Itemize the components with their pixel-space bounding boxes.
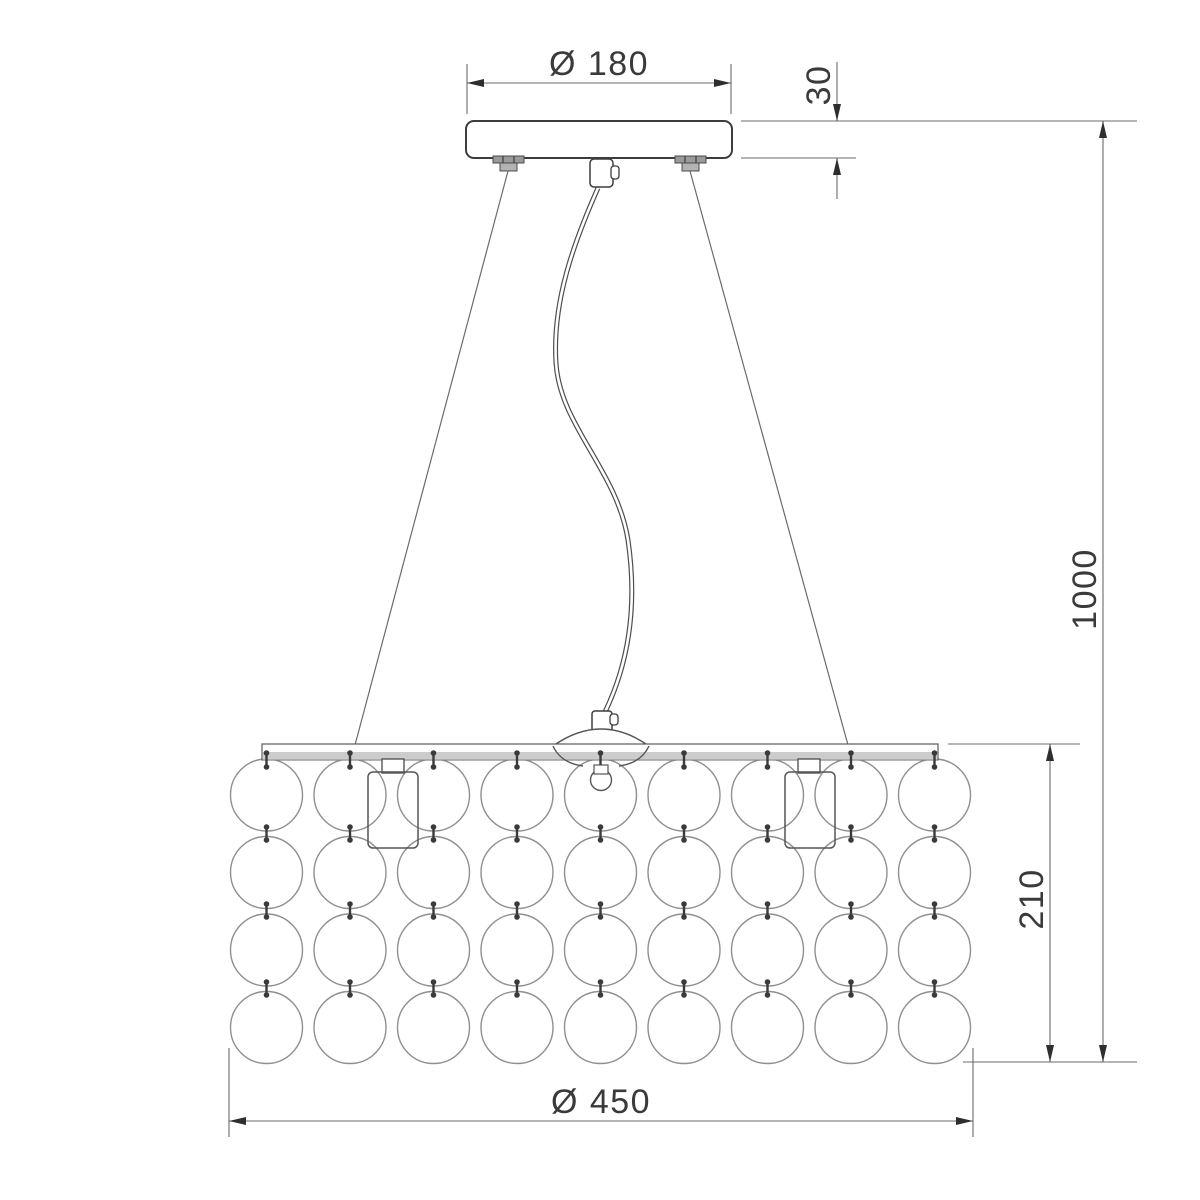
pin-dot <box>514 750 520 756</box>
arrow-left <box>229 1117 246 1125</box>
power-cord <box>556 188 632 712</box>
pin-dot <box>765 992 771 998</box>
pin-dot <box>431 837 437 843</box>
pin-dot <box>514 914 520 920</box>
pin-dot <box>765 764 771 770</box>
glass-bubble <box>815 992 887 1064</box>
lamp-socket-right <box>785 759 835 848</box>
glass-bubble <box>398 992 470 1064</box>
pin-dot <box>264 824 270 830</box>
glass-bubble <box>565 992 637 1064</box>
pin-dot <box>932 750 938 756</box>
glass-bubble <box>565 914 637 986</box>
pin-dot <box>347 992 353 998</box>
glass-bubble <box>648 914 720 986</box>
pin-dot <box>347 837 353 843</box>
pin-dot <box>765 824 771 830</box>
glass-bubble <box>815 914 887 986</box>
glass-bubble <box>481 914 553 986</box>
plate-screw-left <box>493 156 524 171</box>
pin-dot <box>431 901 437 907</box>
pin-dot <box>431 979 437 985</box>
arrow-down <box>1046 1045 1054 1062</box>
pin-dot <box>514 992 520 998</box>
pin-dot <box>681 824 687 830</box>
pin-dot <box>347 914 353 920</box>
glass-bubble <box>231 837 303 909</box>
pin-dot <box>598 837 604 843</box>
pin-dot <box>514 837 520 843</box>
pin-dot <box>598 750 604 756</box>
glass-bubble <box>481 992 553 1064</box>
dimension-annotations <box>229 62 1137 1137</box>
pin-dot <box>848 764 854 770</box>
glass-bubble <box>398 914 470 986</box>
pin-dot <box>264 979 270 985</box>
dim-label-shade-height: 210 <box>1013 868 1051 929</box>
pin-dot <box>598 914 604 920</box>
pin-dot <box>765 750 771 756</box>
dim-label-canopy-height: 30 <box>800 65 838 106</box>
pin-dot <box>681 979 687 985</box>
pin-dot <box>681 837 687 843</box>
pin-dot <box>347 901 353 907</box>
pin-dot <box>681 901 687 907</box>
arrow-right <box>714 79 731 87</box>
pin-dot <box>598 824 604 830</box>
pin-dot <box>431 914 437 920</box>
pin-dot <box>848 901 854 907</box>
glass-bubble <box>231 914 303 986</box>
arrow-down <box>1099 1045 1107 1062</box>
glass-bubble <box>481 837 553 909</box>
pin-dot <box>848 979 854 985</box>
suspension-cable-left <box>355 171 508 745</box>
pin-dot <box>681 992 687 998</box>
glass-bubble <box>314 992 386 1064</box>
pin-dot <box>932 764 938 770</box>
plate-screw-right <box>675 156 706 171</box>
dim-label-suspension-height: 1000 <box>1066 548 1104 630</box>
pin-dot <box>598 992 604 998</box>
pin-dot <box>681 914 687 920</box>
pin-dot <box>765 837 771 843</box>
pin-dot <box>347 824 353 830</box>
cord-grip-top <box>590 159 619 187</box>
pin-dot <box>347 750 353 756</box>
glass-bubble <box>899 914 971 986</box>
pin-dot <box>848 914 854 920</box>
glass-bubble <box>732 914 804 986</box>
pin-dot <box>598 979 604 985</box>
glass-bubble <box>732 992 804 1064</box>
pin-dot <box>932 992 938 998</box>
pin-dot <box>932 914 938 920</box>
technical-drawing: Ø 180 30 1000 210 Ø 450 <box>0 0 1200 1200</box>
arrow-down <box>833 104 841 121</box>
pin-dot <box>264 914 270 920</box>
pin-dot <box>932 901 938 907</box>
pin-dot <box>514 979 520 985</box>
dim-label-canopy-diameter: Ø 180 <box>549 45 649 83</box>
glass-bubble <box>565 837 637 909</box>
pin-dot <box>848 824 854 830</box>
pin-dot <box>848 837 854 843</box>
pin-dot <box>932 837 938 843</box>
center-bulb <box>591 765 612 791</box>
glass-bubble <box>648 992 720 1064</box>
pin-dot <box>264 750 270 756</box>
glass-bubble <box>899 837 971 909</box>
pin-dot <box>347 979 353 985</box>
pin-dot <box>598 901 604 907</box>
pin-dot <box>681 750 687 756</box>
pin-dot <box>848 992 854 998</box>
canopy-plate <box>466 121 732 158</box>
pin-dot <box>932 979 938 985</box>
pin-dot <box>514 764 520 770</box>
pin-dot <box>264 992 270 998</box>
glass-bubble <box>314 914 386 986</box>
pin-dot <box>765 979 771 985</box>
arrow-left <box>467 79 484 87</box>
dim-label-shade-diameter: Ø 450 <box>551 1083 651 1121</box>
pin-dot <box>431 750 437 756</box>
pin-dot <box>264 764 270 770</box>
pin-dot <box>848 750 854 756</box>
pin-dot <box>932 824 938 830</box>
pin-dot <box>264 901 270 907</box>
pin-dot <box>347 764 353 770</box>
pin-dot <box>514 901 520 907</box>
pin-dot <box>431 992 437 998</box>
glass-bubble <box>899 992 971 1064</box>
lamp-socket-left <box>368 759 418 848</box>
suspension-cable-right <box>690 171 848 745</box>
arrow-up <box>1046 744 1054 761</box>
pin-dot <box>765 901 771 907</box>
pin-dot <box>264 837 270 843</box>
arrow-up <box>833 158 841 175</box>
arrow-up <box>1099 121 1107 138</box>
pin-dot <box>514 824 520 830</box>
glass-bubble <box>648 837 720 909</box>
glass-bubble <box>231 992 303 1064</box>
pin-dot <box>681 764 687 770</box>
pin-dot <box>431 764 437 770</box>
pendant-lamp-drawing: Ø 180 30 1000 210 Ø 450 <box>0 0 1200 1200</box>
pin-dot <box>765 914 771 920</box>
arrow-right <box>956 1117 973 1125</box>
pin-dot <box>431 824 437 830</box>
